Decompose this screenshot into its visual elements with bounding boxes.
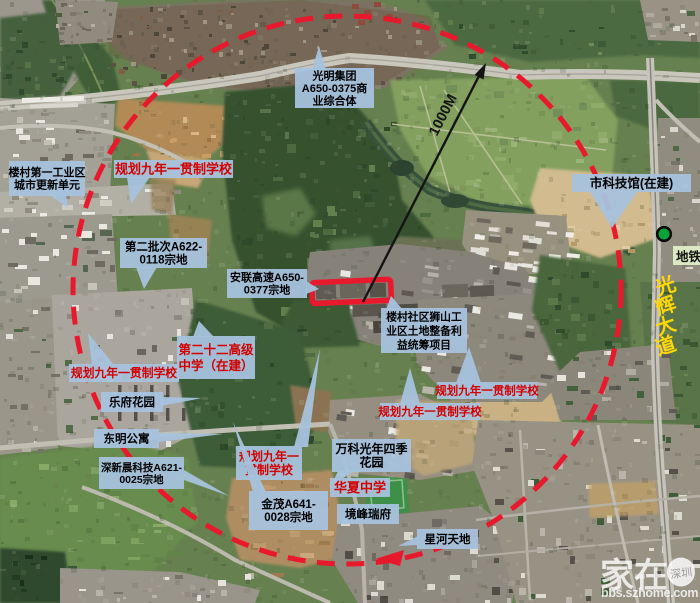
svg-text:中学（在建）: 中学（在建）	[178, 358, 253, 373]
svg-text:第二批次A622-: 第二批次A622-	[125, 240, 202, 254]
svg-text:益统筹项目: 益统筹项目	[397, 337, 451, 351]
svg-text:第二十二高级: 第二十二高级	[178, 342, 254, 357]
svg-text:深新晨科技A621-: 深新晨科技A621-	[101, 461, 183, 474]
svg-text:华夏中学: 华夏中学	[334, 480, 386, 495]
svg-text:规划九年一贯制学校: 规划九年一贯制学校	[435, 384, 539, 398]
svg-text:A650-0375商: A650-0375商	[302, 81, 367, 95]
svg-text:楼村社区狮山工: 楼村社区狮山工	[386, 309, 462, 323]
svg-text:bbs.szhome.com: bbs.szhome.com	[601, 586, 698, 600]
svg-text:楼村第一工业区: 楼村第一工业区	[9, 165, 86, 179]
svg-text:0377宗地: 0377宗地	[244, 283, 290, 297]
svg-text:0028宗地: 0028宗地	[264, 510, 313, 524]
svg-text:规划九年一贯制学校: 规划九年一贯制学校	[115, 162, 233, 177]
svg-text:地铁: 地铁	[676, 249, 700, 264]
svg-text:规划九年一贯制学校: 规划九年一贯制学校	[378, 405, 482, 419]
svg-text:乐府花园: 乐府花园	[109, 395, 155, 409]
svg-text:星河天地: 星河天地	[425, 532, 471, 546]
svg-text:光明集团: 光明集团	[312, 69, 357, 83]
svg-text:规划九年一贯制学校: 规划九年一贯制学校	[71, 366, 177, 380]
svg-text:东明公寓: 东明公寓	[104, 432, 150, 446]
svg-text:市科技馆(在建): 市科技馆(在建)	[590, 176, 673, 191]
svg-text:花园: 花园	[359, 455, 383, 470]
svg-text:金茂A641-: 金茂A641-	[260, 497, 315, 511]
svg-text:0025宗地: 0025宗地	[119, 473, 164, 486]
svg-text:安联高速A650-: 安联高速A650-	[230, 270, 304, 284]
svg-text:万科光年四季: 万科光年四季	[334, 441, 408, 456]
svg-text:境峰瑞府: 境峰瑞府	[345, 507, 391, 521]
svg-text:城市更新单元: 城市更新单元	[14, 178, 80, 192]
svg-text:业综合体: 业综合体	[313, 94, 358, 108]
svg-text:业区土地整备利: 业区土地整备利	[386, 323, 462, 337]
svg-text:0118宗地: 0118宗地	[140, 253, 188, 267]
